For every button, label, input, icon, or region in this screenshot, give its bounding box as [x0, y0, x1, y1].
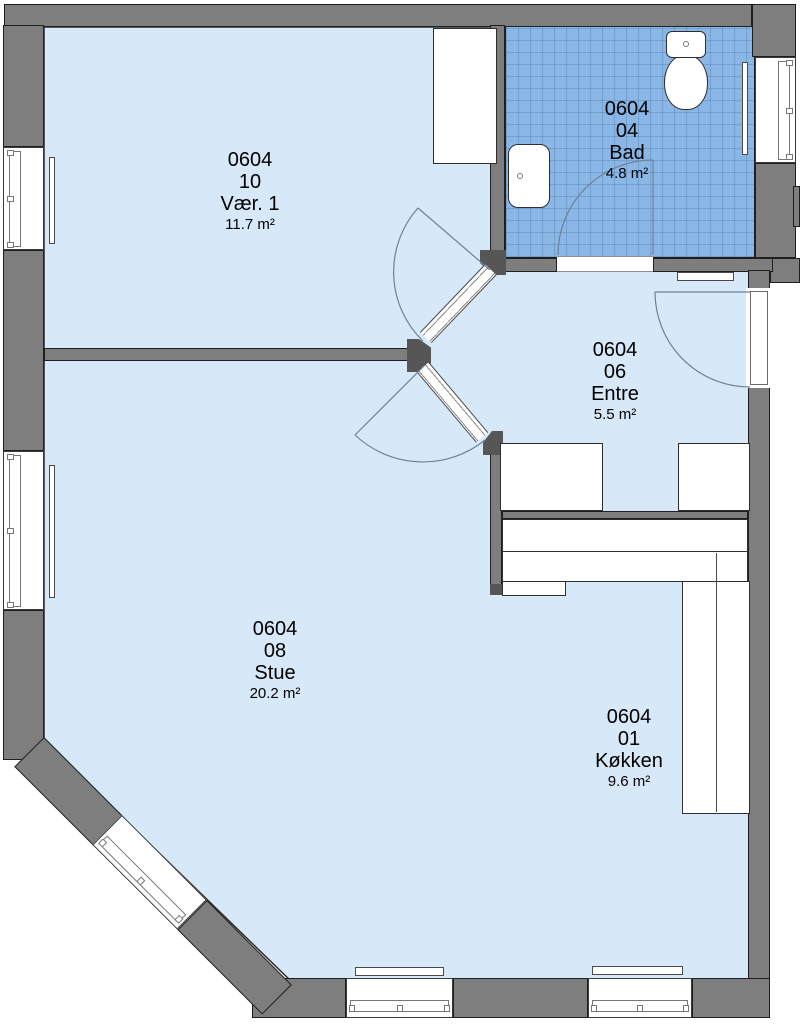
- radiator-koekken: [592, 966, 683, 975]
- room-label-entre: 0604 06 Entre 5.5 m²: [530, 339, 700, 424]
- wall-top: [4, 4, 752, 27]
- wardrobe-entre-right: [678, 443, 750, 511]
- wall-end-cap-kitchen: [490, 584, 502, 595]
- room-area: 9.6 m²: [544, 772, 714, 791]
- window-mullion: [7, 454, 14, 460]
- window-mullion: [7, 196, 14, 202]
- room-label-stue: 0604 08 Stue 20.2 m²: [190, 618, 360, 703]
- room-name: Stue: [190, 662, 360, 684]
- door-opening-stue: [417, 362, 488, 443]
- radiator-stue-left: [49, 465, 55, 598]
- window-mullion: [786, 108, 793, 114]
- wall-bottom-right: [692, 978, 770, 1018]
- radiator-stue-bottom: [355, 967, 444, 976]
- window-mullion: [7, 150, 14, 156]
- window-koekken-bottom: [588, 978, 692, 1018]
- wall-chamfer-lower: [177, 900, 292, 1015]
- wall-right-stub-party: [793, 186, 800, 227]
- window-stue-left: [3, 451, 44, 610]
- wall-right-upper: [755, 163, 796, 258]
- entrance-door-frame: [750, 291, 768, 385]
- wall-right-stub-entry: [770, 258, 800, 283]
- room-unit: 0604: [165, 149, 335, 171]
- window-chamfer: [92, 815, 207, 930]
- radiator-entre: [677, 272, 734, 281]
- window-mullion: [786, 60, 793, 66]
- wall-bottom-middle: [453, 978, 588, 1018]
- door-opening-entrance: [746, 288, 772, 388]
- room-number: 01: [544, 728, 714, 750]
- wall-vaer1-stue: [44, 348, 408, 361]
- window-mullion: [7, 602, 14, 608]
- window-mullion: [444, 1005, 450, 1012]
- door-opening-bad: [557, 256, 653, 272]
- closet-vaer1: [433, 28, 497, 164]
- kitchen-counter-second-row: [502, 551, 748, 582]
- room-unit: 0604: [542, 98, 712, 120]
- window-mullion: [637, 1005, 643, 1012]
- room-area: 4.8 m²: [542, 164, 712, 183]
- window-mullion: [349, 1005, 355, 1012]
- room-unit: 0604: [530, 339, 700, 361]
- window-mullion: [397, 1005, 403, 1012]
- kitchen-counter-edge-line: [716, 553, 717, 812]
- wall-left-upper: [3, 25, 44, 147]
- room-area: 5.5 m²: [530, 405, 700, 424]
- window-mullion: [7, 242, 14, 248]
- sink-drain: [517, 173, 523, 179]
- wall-left-middle: [3, 250, 44, 451]
- door-leaf-vaer1: [418, 208, 490, 270]
- kitchen-counter-top-row: [502, 519, 748, 552]
- room-unit: 0604: [190, 618, 360, 640]
- door-leaf-stue: [355, 365, 425, 435]
- room-unit: 0604: [544, 706, 714, 728]
- toilet-flush-button: [683, 41, 689, 47]
- room-label-koekken: 0604 01 Køkken 9.6 m²: [544, 706, 714, 791]
- wall-left-lower: [3, 610, 44, 760]
- room-name: Entre: [530, 383, 700, 405]
- window-vaer1-left: [3, 147, 44, 250]
- door-arc-stue: [355, 435, 485, 462]
- wardrobe-entre-left: [500, 443, 603, 511]
- wall-entre-kitchen-divider: [502, 511, 748, 519]
- window-mullion: [591, 1005, 597, 1012]
- window-stue-bottom: [346, 978, 453, 1018]
- room-name: Køkken: [544, 750, 714, 772]
- room-number: 08: [190, 640, 360, 662]
- window-mullion: [7, 528, 14, 534]
- room-number: 10: [165, 171, 335, 193]
- room-area: 20.2 m²: [190, 684, 360, 703]
- door-arc-vaer1: [394, 208, 423, 341]
- window-mullion: [786, 154, 793, 160]
- wall-right-lower: [748, 387, 770, 1018]
- kitchen-counter-extension: [502, 581, 566, 596]
- window-bad-right: [755, 57, 796, 163]
- room-number: 06: [530, 361, 700, 383]
- room-name: Vær. 1: [165, 193, 335, 215]
- radiator-vaer1: [49, 157, 55, 244]
- wall-top-right-corner: [752, 4, 796, 57]
- room-label-bad: 0604 04 Bad 4.8 m²: [542, 98, 712, 183]
- floor-plan: 0604 10 Vær. 1 11.7 m² 0604 04 Bad 4.8 m…: [0, 0, 800, 1025]
- window-mullion: [683, 1005, 689, 1012]
- room-label-vaer1: 0604 10 Vær. 1 11.7 m²: [165, 149, 335, 234]
- wall-bathroom-bottom-left: [505, 258, 557, 272]
- room-area: 11.7 m²: [165, 215, 335, 234]
- towel-rail-bad: [742, 62, 748, 155]
- door-opening-vaer1: [420, 264, 497, 343]
- room-name: Bad: [542, 142, 712, 164]
- room-number: 04: [542, 120, 712, 142]
